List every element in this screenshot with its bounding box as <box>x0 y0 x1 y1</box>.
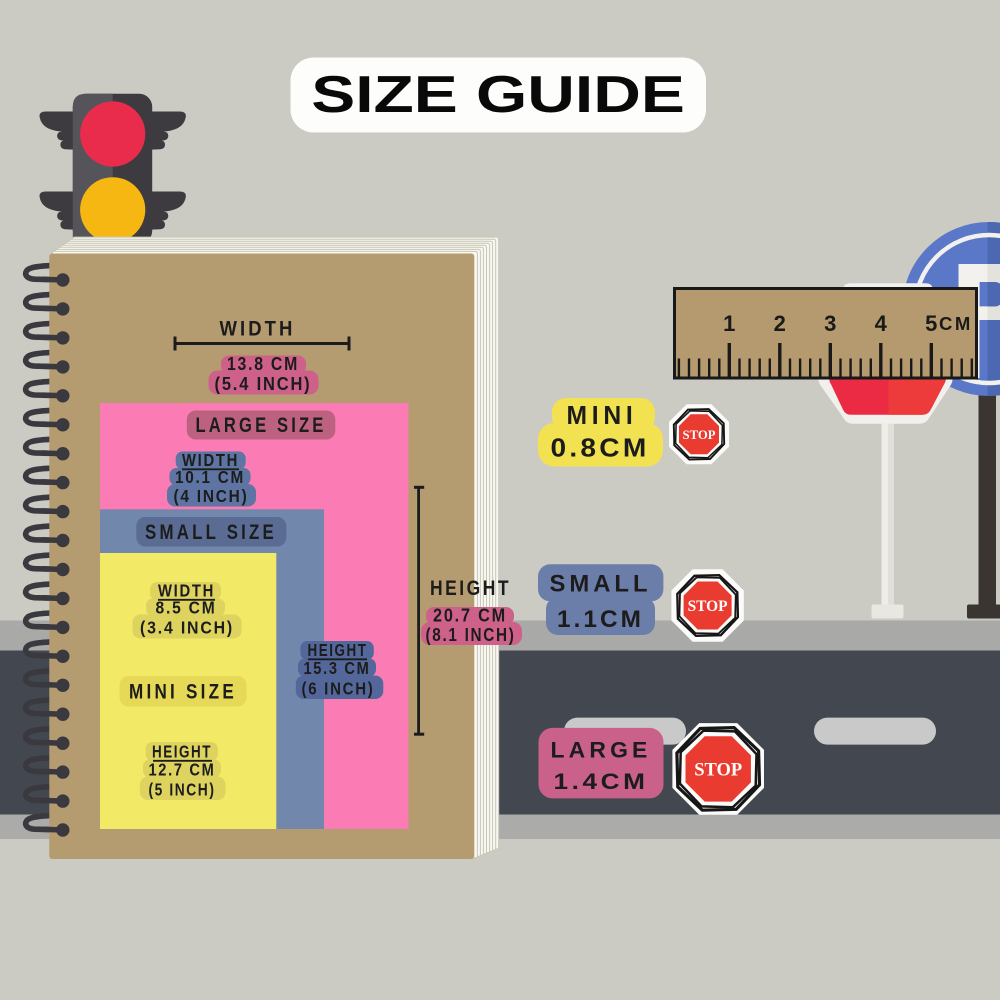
svg-text:15.3 CM: 15.3 CM <box>304 658 371 678</box>
svg-text:1.4CM: 1.4CM <box>554 769 649 794</box>
svg-text:(3.4 INCH): (3.4 INCH) <box>140 618 234 638</box>
svg-text:3: 3 <box>824 311 836 336</box>
svg-text:(4 INCH): (4 INCH) <box>174 486 249 506</box>
svg-text:20.7 CM: 20.7 CM <box>433 606 507 626</box>
svg-text:HEIGHT: HEIGHT <box>308 640 368 660</box>
svg-text:0.8CM: 0.8CM <box>551 433 650 463</box>
svg-text:MINI SIZE: MINI SIZE <box>129 681 237 704</box>
svg-text:STOP: STOP <box>683 427 716 442</box>
svg-text:2: 2 <box>774 311 786 336</box>
svg-text:(5.4 INCH): (5.4 INCH) <box>215 374 312 394</box>
svg-text:SMALL: SMALL <box>550 571 652 598</box>
svg-text:HEIGHT: HEIGHT <box>430 577 511 600</box>
svg-text:STOP: STOP <box>688 598 729 615</box>
svg-text:MINI: MINI <box>567 400 638 430</box>
svg-text:WIDTH: WIDTH <box>220 318 296 341</box>
svg-text:1: 1 <box>723 311 735 336</box>
svg-text:(8.1 INCH): (8.1 INCH) <box>426 625 516 645</box>
svg-text:4: 4 <box>875 311 888 336</box>
svg-text:HEIGHT: HEIGHT <box>152 742 212 762</box>
svg-text:13.8 CM: 13.8 CM <box>227 354 299 374</box>
svg-text:LARGE SIZE: LARGE SIZE <box>196 414 327 437</box>
svg-text:CM: CM <box>939 313 973 334</box>
svg-text:8.5 CM: 8.5 CM <box>156 598 217 618</box>
svg-text:LARGE: LARGE <box>551 738 652 763</box>
svg-text:5: 5 <box>925 311 937 336</box>
svg-text:STOP: STOP <box>694 760 742 781</box>
svg-text:10.1 CM: 10.1 CM <box>175 467 245 487</box>
svg-text:(5 INCH): (5 INCH) <box>149 780 216 800</box>
svg-text:SMALL SIZE: SMALL SIZE <box>145 521 277 544</box>
svg-text:(6 INCH): (6 INCH) <box>302 679 375 699</box>
svg-text:1.1CM: 1.1CM <box>557 606 644 633</box>
svg-text:SIZE GUIDE: SIZE GUIDE <box>311 65 685 123</box>
svg-text:12.7 CM: 12.7 CM <box>149 760 216 780</box>
